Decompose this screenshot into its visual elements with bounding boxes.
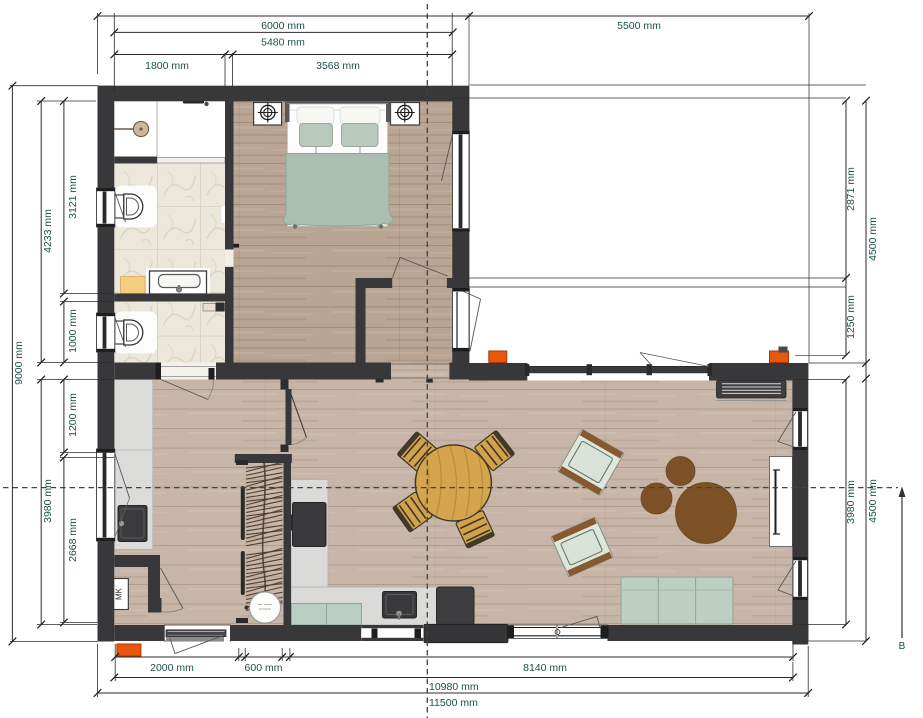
svg-text:1200 mm: 1200 mm <box>67 393 79 437</box>
svg-text:10980 mm: 10980 mm <box>429 681 479 693</box>
svg-text:2000 mm: 2000 mm <box>150 662 194 674</box>
svg-text:3980 mm: 3980 mm <box>845 480 857 524</box>
svg-text:1000 mm: 1000 mm <box>67 309 79 353</box>
svg-text:4500 mm: 4500 mm <box>867 217 879 261</box>
svg-text:8140 mm: 8140 mm <box>523 662 567 674</box>
svg-text:1800 mm: 1800 mm <box>145 60 189 72</box>
svg-text:2871 mm: 2871 mm <box>845 167 857 211</box>
svg-text:5500 mm: 5500 mm <box>617 20 661 32</box>
svg-text:3980 mm: 3980 mm <box>42 479 54 523</box>
svg-text:4233 mm: 4233 mm <box>42 209 54 253</box>
svg-text:6000 mm: 6000 mm <box>261 20 305 32</box>
svg-text:5480 mm: 5480 mm <box>261 37 305 49</box>
svg-text:B: B <box>899 641 906 652</box>
svg-text:3121 mm: 3121 mm <box>67 175 79 219</box>
svg-text:600 mm: 600 mm <box>245 662 283 674</box>
svg-text:2668 mm: 2668 mm <box>67 518 79 562</box>
svg-text:4500 mm: 4500 mm <box>867 479 879 523</box>
svg-text:11500 mm: 11500 mm <box>429 697 478 709</box>
svg-text:3568 mm: 3568 mm <box>316 60 360 72</box>
svg-text:9000 mm: 9000 mm <box>13 341 25 385</box>
svg-text:1250 mm: 1250 mm <box>845 295 857 339</box>
svg-text:MK: MK <box>115 587 124 600</box>
